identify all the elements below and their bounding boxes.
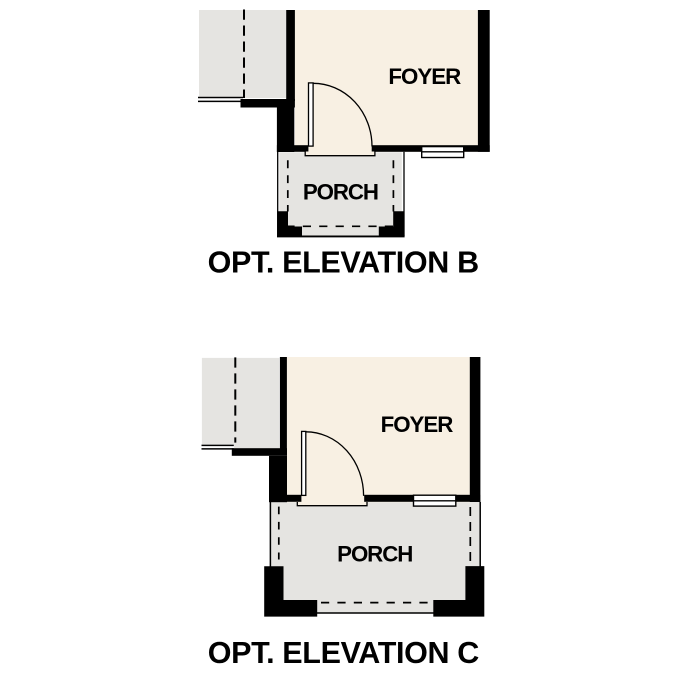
svg-text:OPT. ELEVATION B: OPT. ELEVATION B [208,246,479,280]
svg-text:OPT. ELEVATION C: OPT. ELEVATION C [208,636,480,670]
svg-text:PORCH: PORCH [337,542,412,567]
svg-text:FOYER: FOYER [388,64,461,89]
svg-text:PORCH: PORCH [303,179,378,204]
svg-text:FOYER: FOYER [381,412,454,437]
